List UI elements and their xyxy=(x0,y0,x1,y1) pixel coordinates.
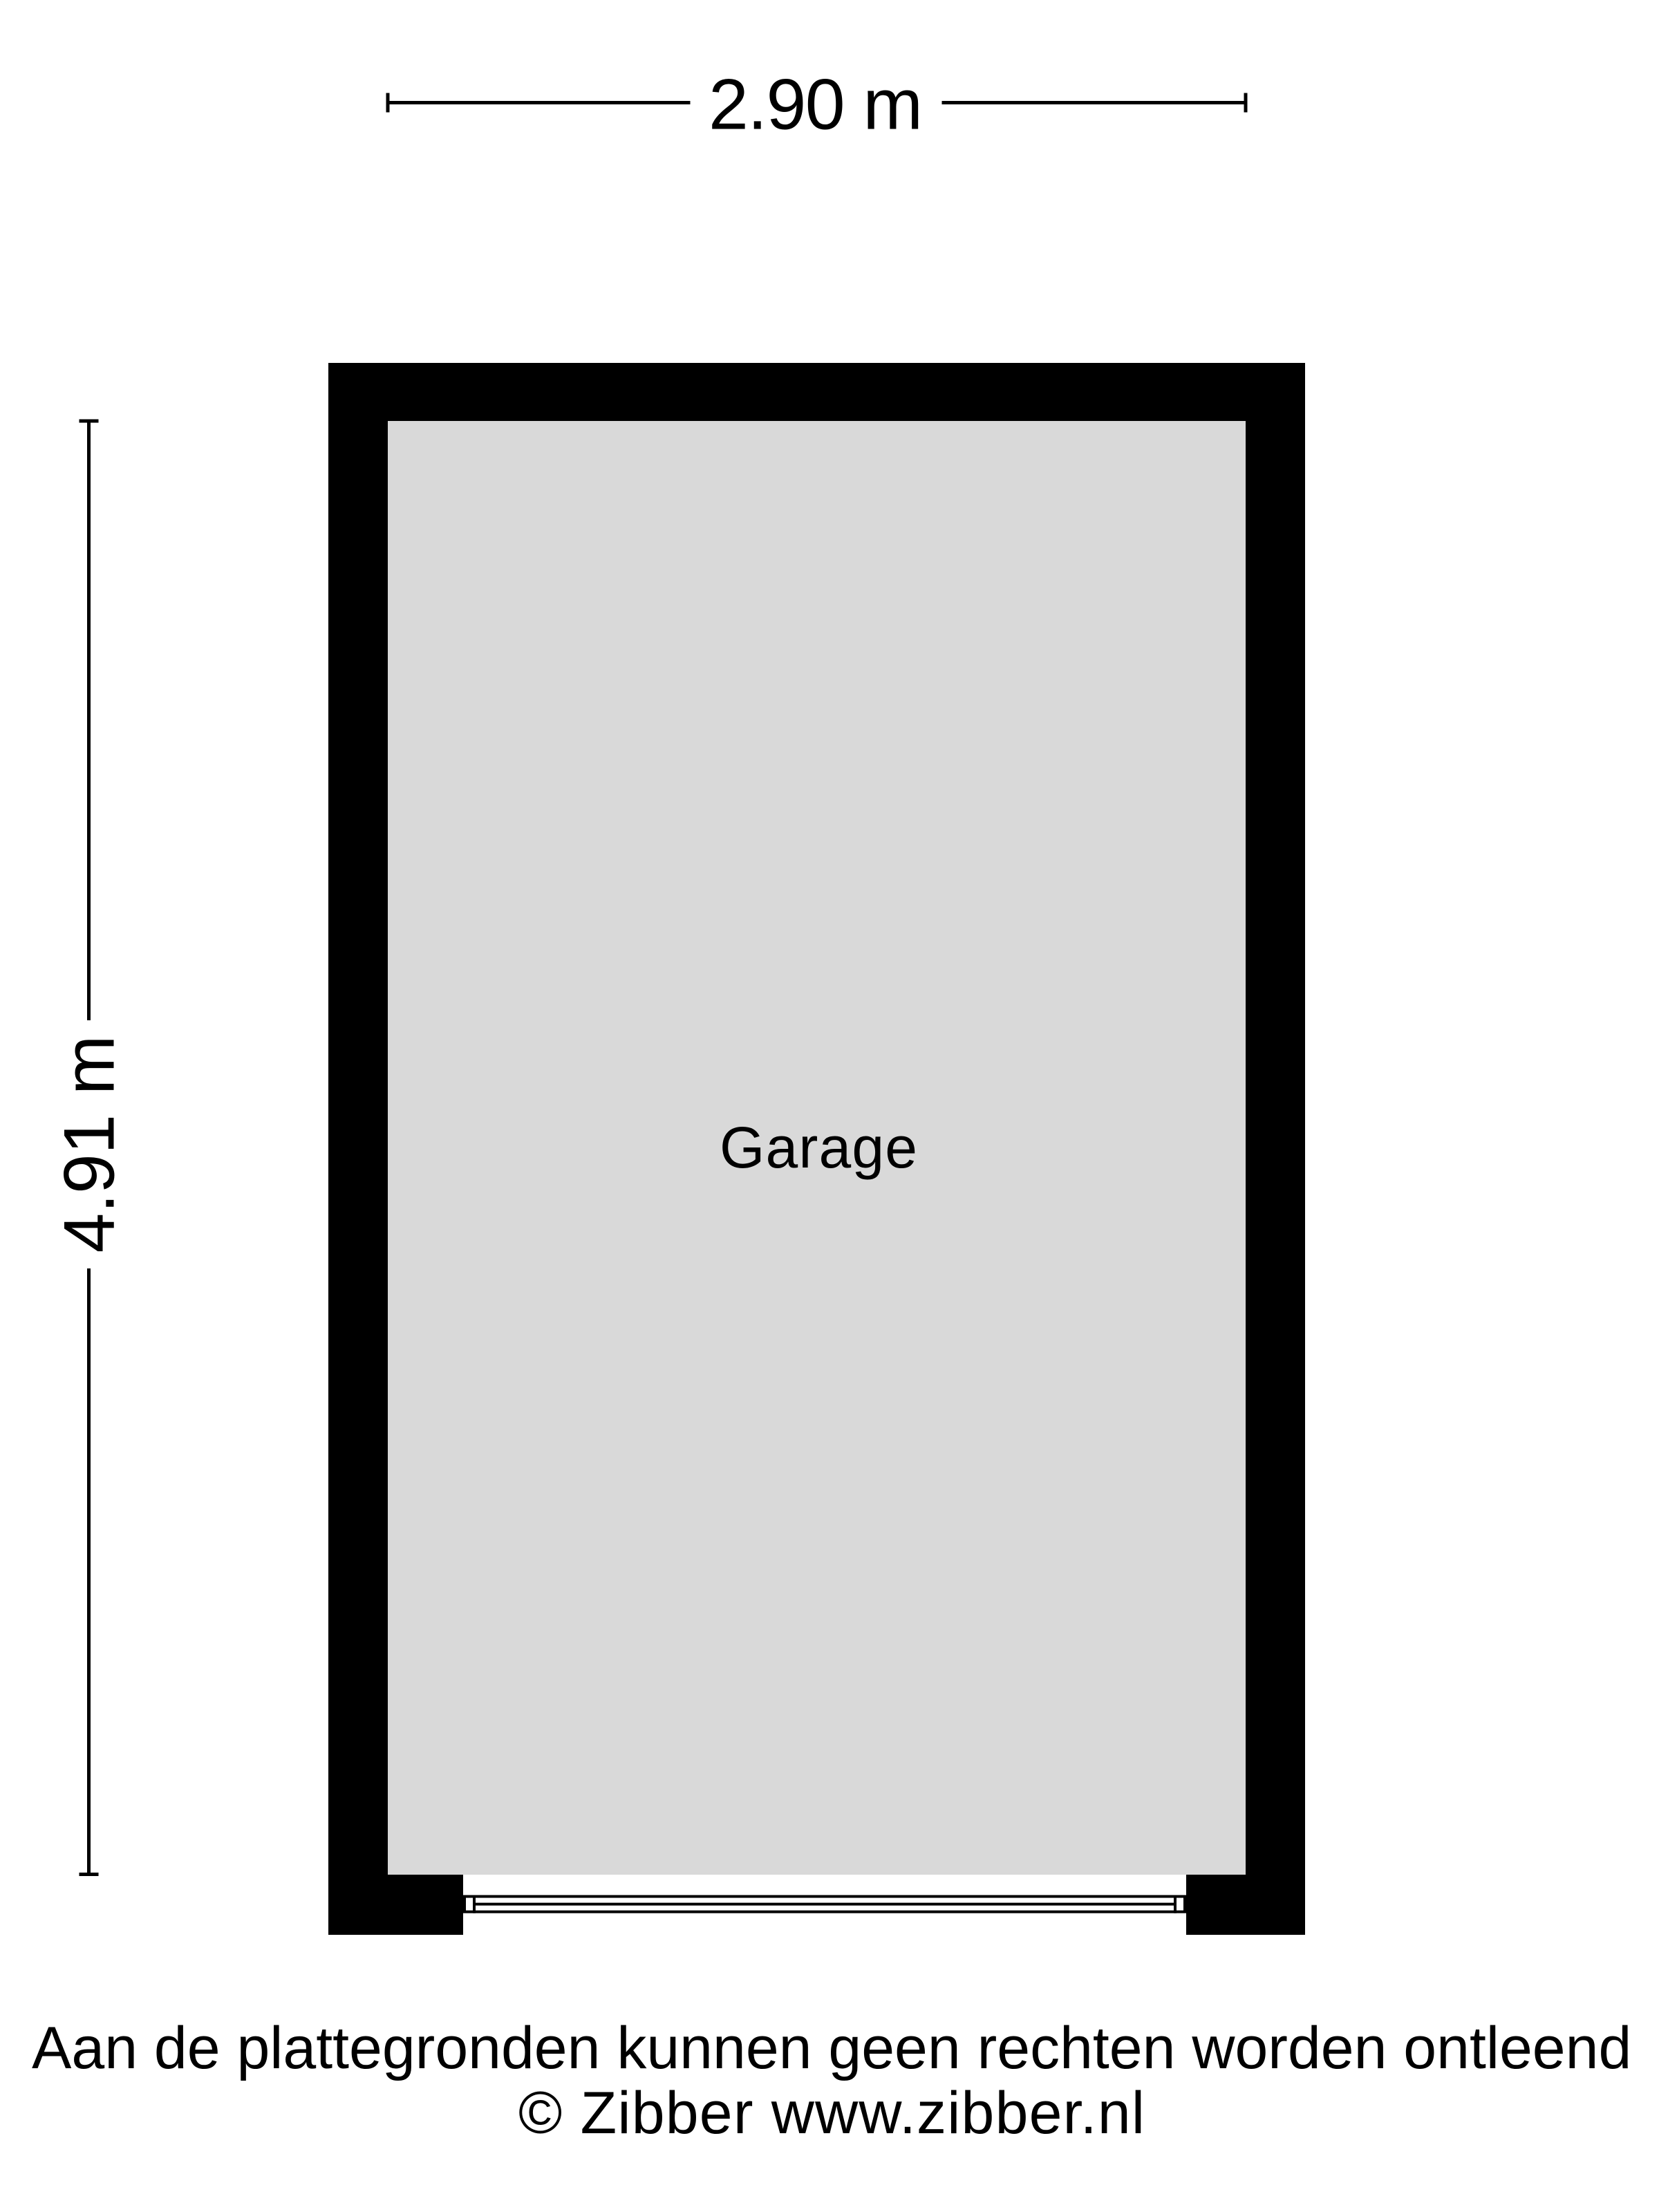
svg-text:© Zibber www.zibber.nl: © Zibber www.zibber.nl xyxy=(518,2080,1145,2146)
svg-text:Aan de plattegronden kunnen ge: Aan de plattegronden kunnen geen rechten… xyxy=(32,2015,1631,2081)
svg-text:2.90 m: 2.90 m xyxy=(709,65,923,145)
svg-text:Garage: Garage xyxy=(720,1115,917,1180)
svg-text:4.91 m: 4.91 m xyxy=(50,1035,130,1253)
